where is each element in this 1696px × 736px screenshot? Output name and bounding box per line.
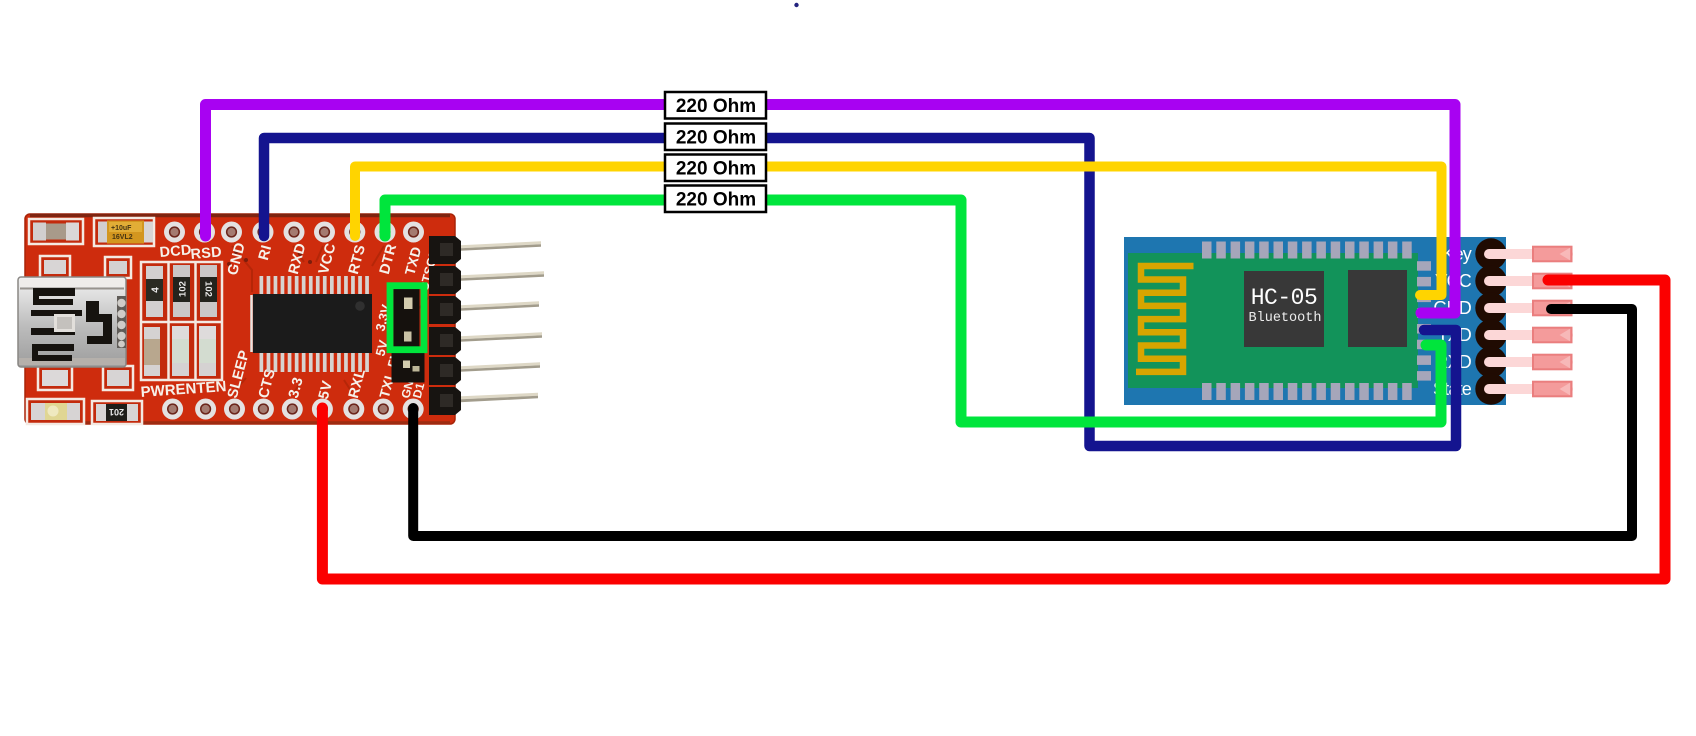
svg-text:102: 102 bbox=[203, 281, 214, 297]
svg-text:102: 102 bbox=[178, 281, 189, 297]
svg-text:DCD: DCD bbox=[159, 242, 192, 261]
svg-text:4: 4 bbox=[151, 287, 162, 293]
svg-text:220 Ohm: 220 Ohm bbox=[676, 96, 756, 117]
svg-text:16VL2: 16VL2 bbox=[112, 234, 133, 241]
svg-text:+10uF: +10uF bbox=[111, 225, 132, 232]
svg-text:201: 201 bbox=[109, 407, 124, 417]
svg-text:220 Ohm: 220 Ohm bbox=[676, 190, 756, 211]
svg-text:220 Ohm: 220 Ohm bbox=[676, 128, 756, 149]
svg-text:220 Ohm: 220 Ohm bbox=[676, 159, 756, 180]
svg-text:HC-05: HC-05 bbox=[1251, 285, 1318, 311]
svg-text:RSD: RSD bbox=[190, 244, 222, 263]
svg-text:Bluetooth: Bluetooth bbox=[1249, 311, 1322, 326]
